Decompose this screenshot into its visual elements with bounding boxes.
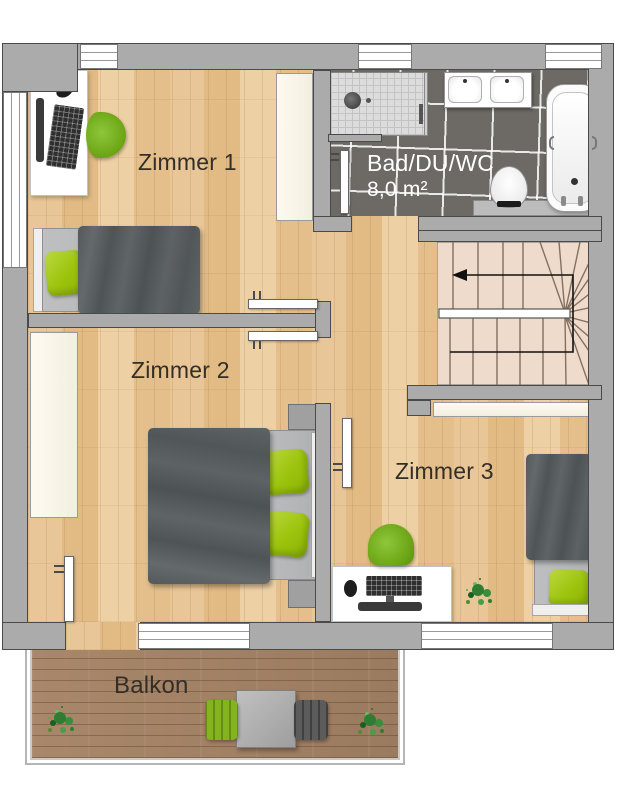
- door-zimmer3: [342, 418, 352, 488]
- room-label-bad: Bad/DU/WC: [367, 150, 494, 177]
- door-handle-tick: [253, 341, 255, 349]
- corner-block-top-left: [2, 43, 78, 92]
- wardrobe-zimmer1: [276, 73, 313, 221]
- door-handle-tick: [54, 571, 64, 573]
- plant: [460, 572, 494, 610]
- toilet-seat-bar: [497, 201, 521, 207]
- blanket: [148, 428, 270, 584]
- pillow: [548, 569, 589, 606]
- tub-drain: [571, 178, 578, 185]
- outer-wall-bottom-left: [2, 622, 66, 650]
- monitor-icon: [36, 98, 44, 162]
- tub-handle: [549, 136, 554, 150]
- room-label-zimmer1: Zimmer 1: [138, 149, 237, 176]
- stair-handrail: [439, 309, 570, 318]
- closet-zimmer3: [433, 402, 602, 417]
- door-zimmer1: [248, 299, 318, 309]
- window-bottom-zimmer3: [421, 623, 553, 649]
- shower-drain: [366, 98, 371, 103]
- plant: [42, 700, 76, 736]
- window-left: [3, 92, 27, 268]
- wall-bad-bottom-left: [313, 216, 352, 232]
- room-area-bad: 8,0 m²: [367, 178, 428, 202]
- door-balcony: [64, 556, 74, 622]
- room-label-zimmer2: Zimmer 2: [131, 357, 230, 384]
- mouse-icon: [344, 580, 357, 597]
- tub-faucet: [578, 196, 583, 206]
- door-handle-tick: [330, 159, 339, 161]
- nightstand: [288, 580, 316, 608]
- door-bathroom: [340, 150, 349, 214]
- staircase: [437, 242, 602, 385]
- wall-stairs-bottom: [407, 385, 602, 400]
- monitor-icon: [358, 602, 422, 611]
- shower-glass: [424, 72, 428, 136]
- balcony-table: [236, 690, 296, 748]
- shower-head-icon: [344, 92, 361, 109]
- plant: [352, 702, 386, 738]
- balcony-chair-gray: [294, 700, 328, 740]
- room-label-balkon: Balkon: [114, 672, 189, 700]
- door-handle-tick: [253, 291, 255, 299]
- door-zimmer2: [248, 331, 318, 341]
- door-handle-tick: [333, 463, 342, 465]
- nightstand: [288, 404, 316, 430]
- shower-glass-handle: [419, 104, 423, 124]
- tub-faucet: [561, 196, 566, 206]
- faucet-dot: [505, 79, 509, 83]
- window-top-2: [358, 44, 412, 69]
- chair-zimmer3: [368, 524, 414, 566]
- blanket: [78, 226, 200, 314]
- door-handle-tick: [330, 153, 339, 155]
- window-top-1: [80, 44, 118, 69]
- wall-zimmer1-bad: [313, 70, 331, 217]
- wall-zimmer1-zimmer2: [28, 313, 331, 328]
- room-label-zimmer3: Zimmer 3: [395, 458, 494, 485]
- door-handle-tick: [259, 341, 261, 349]
- outer-wall-right: [588, 43, 614, 650]
- wardrobe-zimmer2: [30, 332, 78, 518]
- faucet-dot: [463, 79, 467, 83]
- monitor-stand: [386, 596, 394, 602]
- window-top-3: [545, 44, 602, 69]
- door-handle-tick: [333, 469, 342, 471]
- door-handle-tick: [54, 565, 64, 567]
- balcony-chair-green: [205, 700, 238, 740]
- keyboard-icon: [366, 576, 422, 596]
- wall-shower-stub: [328, 134, 382, 142]
- door-handle-tick: [259, 291, 261, 299]
- wall-zimmer3-stub: [407, 400, 431, 416]
- wall-zimmer2-zimmer3: [315, 403, 331, 622]
- window-bottom-balcony: [138, 623, 250, 649]
- floor-plan: Zimmer 1 Zimmer 2 Zimmer 3 Bad/DU/WC 8,0…: [0, 0, 627, 800]
- balcony-door-threshold: [66, 622, 140, 650]
- wall-stairs-top: [418, 230, 602, 242]
